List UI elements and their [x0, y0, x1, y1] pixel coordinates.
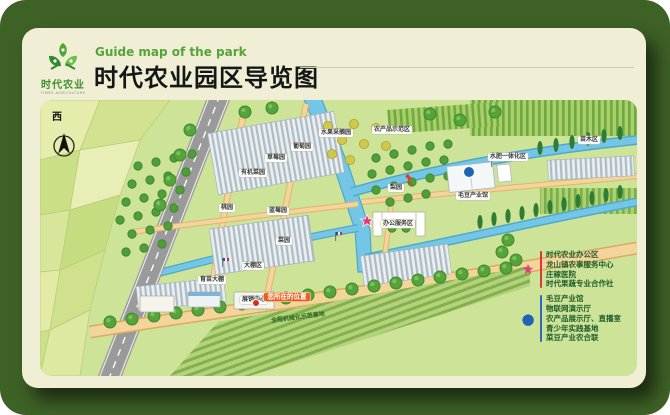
- legend-dot-group: ● 毛豆产业馆 物联网演示厅 农产品展示厅、直播室 青少年实践基地 菜豆产业农合…: [518, 294, 636, 343]
- blue-dot-marker: [464, 167, 475, 178]
- label-fruit-picking-garden: 水果采摘园: [319, 129, 353, 137]
- map-legend: ★ 时代农业办公区 龙山镇农事服务中心 庄稼医院 时代果蔬专业合作社 ● 毛豆产…: [518, 250, 636, 348]
- screenshot: 时代农业 TIMES AGRICULTURE Guide map of the …: [0, 0, 670, 415]
- legend-red-bar: [540, 251, 542, 288]
- legend-item: 庄稼医院: [546, 270, 614, 280]
- legend-blue-bar: [540, 295, 542, 342]
- label-office-area: 办公服务区: [381, 220, 415, 228]
- label-strawberry-garden: 草莓园: [265, 154, 287, 162]
- legend-item: 龙山镇农事服务中心: [546, 260, 614, 270]
- label-greenhouse-zone: 大棚区: [242, 262, 264, 270]
- legend-item: 青少年实践基地: [546, 324, 621, 334]
- logo-name: 时代农业: [34, 80, 92, 91]
- label-organic-veg-garden: 有机菜园: [239, 169, 267, 177]
- brand-logo: 时代农业 TIMES AGRICULTURE: [34, 42, 92, 96]
- label-peach-garden: 桃园: [219, 204, 235, 212]
- header-rule: [300, 67, 634, 68]
- you-are-here-badge: 您所在的位置: [264, 293, 311, 302]
- label-blueberry-garden: 蓝莓园: [267, 207, 289, 215]
- circle-marker-icon: ●: [518, 294, 538, 343]
- compass-west-label: 西: [52, 108, 62, 123]
- label-industry-hall: 毛豆产业馆: [456, 192, 490, 200]
- logo-subname: TIMES AGRICULTURE: [34, 91, 92, 96]
- you-are-here-dot: [252, 299, 260, 307]
- legend-item: 菜豆产业农合联: [546, 333, 621, 343]
- label-grape-garden: 葡萄园: [291, 143, 313, 151]
- page-title: 时代农业园区导览图: [94, 58, 319, 93]
- park-map: 西 葡萄园 草莓园 有机菜园 水果采摘园 农产品示范区 桃园 蓝莓园 菜园 大棚…: [40, 100, 637, 376]
- label-pear-garden: 梨园: [388, 184, 404, 192]
- label-nursery-zone: 苗木区: [578, 136, 600, 144]
- label-demo-zone: 农产品示范区: [372, 126, 412, 134]
- star-marker-icon: ★: [518, 250, 538, 289]
- label-vegetable-garden: 菜园: [276, 237, 292, 245]
- label-water-fertilizer-zone: 水肥一体化区: [488, 153, 528, 161]
- legend-item: 时代果蔬专业合作社: [546, 279, 614, 289]
- legend-item: 农产品展示厅、直播室: [546, 314, 621, 324]
- legend-item: 毛豆产业馆: [546, 294, 621, 304]
- legend-item: 时代农业办公区: [546, 250, 614, 260]
- guide-map-card: 时代农业 TIMES AGRICULTURE Guide map of the …: [22, 28, 646, 388]
- label-seedling-greenhouse: 育苗大棚: [198, 276, 226, 284]
- map-subtitle: Guide map of the park: [95, 45, 247, 59]
- legend-item: 物联网演示厅: [546, 304, 621, 314]
- logo-emblem-icon: [41, 42, 85, 76]
- legend-star-group: ★ 时代农业办公区 龙山镇农事服务中心 庄稼医院 时代果蔬专业合作社: [518, 250, 636, 289]
